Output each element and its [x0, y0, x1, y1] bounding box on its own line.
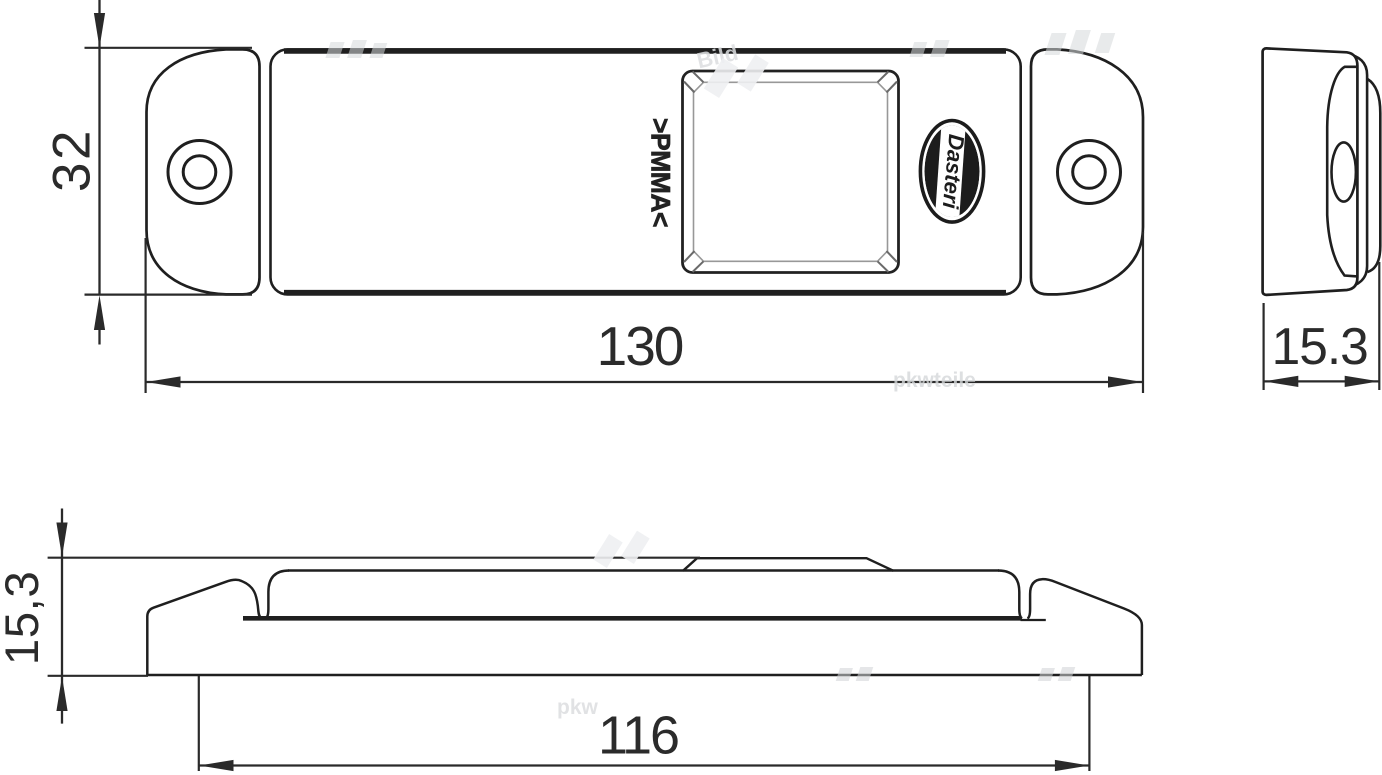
svg-text:pkw: pkw — [557, 696, 599, 719]
svg-text:116: 116 — [598, 706, 678, 766]
svg-text:15,3: 15,3 — [0, 571, 49, 665]
svg-text:>PMMA<: >PMMA< — [646, 118, 676, 227]
svg-text:32: 32 — [43, 128, 102, 192]
svg-text:130: 130 — [597, 315, 683, 377]
svg-text:15.3: 15.3 — [1272, 317, 1368, 375]
svg-text:pkwteile: pkwteile — [893, 369, 976, 392]
